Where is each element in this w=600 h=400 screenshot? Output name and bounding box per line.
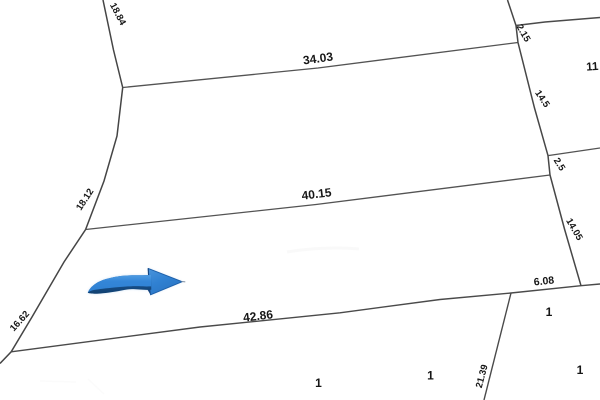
svg-text:11: 11 (586, 61, 600, 74)
svg-text:1: 1 (546, 305, 553, 319)
svg-text:6.08: 6.08 (533, 274, 555, 288)
svg-text:1: 1 (577, 363, 584, 377)
svg-text:1: 1 (427, 369, 434, 383)
svg-text:1: 1 (315, 376, 322, 390)
